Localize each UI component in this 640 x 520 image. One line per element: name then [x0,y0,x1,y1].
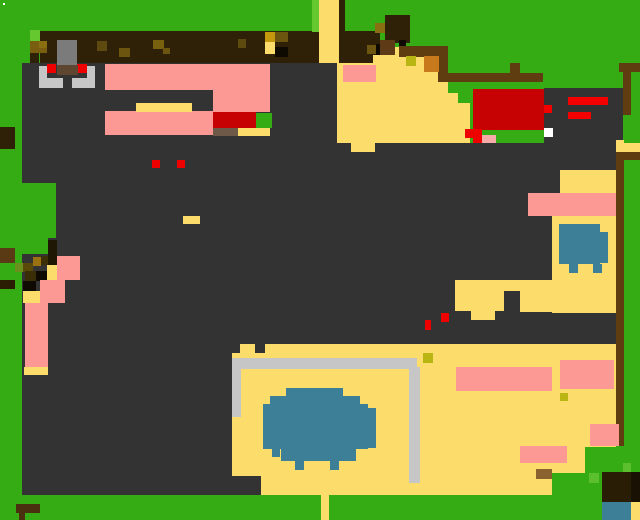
sand-room-top [560,170,616,193]
statue-rail-right [87,66,95,88]
path-spot [97,41,107,51]
statue-rail-left [39,66,47,88]
red-roof [473,89,544,130]
red-item [177,160,185,168]
pond-small-bump [600,232,608,263]
rug-room3 [590,424,619,446]
statue-eye-left [47,64,56,73]
path-hole [275,47,288,57]
rug-bottom [105,111,213,135]
rug-small [57,256,80,280]
pond-big-foot2 [330,461,339,470]
roof-stripe2 [568,112,591,119]
grass-bottom [0,495,640,520]
path-spot [275,32,288,42]
grass-tuft2 [623,463,631,472]
pond-corner [602,502,631,520]
table-small [183,216,200,224]
item-citron2 [423,353,433,363]
bush2-gold [33,257,41,266]
fence-right-bar [616,152,640,160]
tree-trunk [48,240,57,265]
rug-room1 [456,367,552,391]
tree-spot [367,45,376,54]
statue-base [57,65,78,75]
red-flower2 [473,129,482,143]
sand-corner-br [631,502,640,520]
table [136,103,192,112]
statue [57,40,77,66]
path-spot [238,39,246,48]
path-sand-spot [265,42,275,54]
pond-big-r1 [286,388,343,396]
log-dark [0,280,15,289]
rug-sand-yard [343,65,376,82]
tree-dark-br [631,472,640,502]
rug-column [25,303,48,367]
bush2-black2 [23,281,36,291]
sand-strip [24,367,48,375]
sand-path-tab [471,311,495,320]
item-citron [406,56,416,66]
crate-brown [213,128,238,136]
bush-gold-light [39,41,47,48]
sand-path-chunk2 [520,288,552,312]
tree-trunk-top [339,0,345,31]
statue-eye-right [77,64,87,73]
path-spot [119,48,130,57]
rug-small2 [40,280,65,303]
bush-highlight [30,30,40,41]
roof-white [544,128,553,137]
pond-big-low [281,449,356,461]
bush-shadow [30,53,39,63]
red-item3 [441,313,449,322]
pink-flower [482,135,496,143]
fence-right-strip [616,160,624,446]
wall-notch [0,127,15,149]
pond-big-dot [272,449,280,457]
rug-top [105,64,270,90]
rug-room4 [520,446,567,463]
sand-step2 [448,93,458,143]
item-crate-orange [424,56,439,72]
pond-small [559,224,600,264]
sand-path-exit [321,495,329,520]
grass-inlet [0,183,56,238]
tree-canopy [385,15,410,43]
sand-path-chunk [455,280,504,311]
red-machine [213,112,256,128]
fence-bar [438,73,543,82]
sand-path-vertical [319,0,339,64]
sand-tab [351,143,375,152]
pond-big-right [368,408,376,448]
rug-right [213,88,270,112]
pond-small-foot2 [593,264,602,273]
sand-patch [47,265,57,280]
pond-small-foot [569,264,578,273]
bush2-dark [41,256,48,265]
tree-branch [380,40,395,55]
roof-stripe1 [568,97,608,105]
sand-corner [616,143,640,152]
pond-big-main [263,404,368,449]
log [0,248,15,263]
sand-edge [373,55,402,64]
crate-sand [238,128,270,136]
bench [16,504,40,513]
sand-step1 [438,82,448,143]
bush2-olive-dark [25,271,36,281]
statue-rail-right-foot [72,78,87,88]
tree-gold [375,23,385,33]
red-item [152,160,160,168]
rug-wide [528,193,616,216]
pen-rail-left [232,358,241,417]
pen-rail-right [409,367,420,483]
item-crate [536,469,552,479]
roof-tab [544,105,552,113]
statue-rail-left-foot [47,78,63,88]
path-spot [163,48,170,54]
rug-room2 [560,360,614,389]
green-crate [256,113,272,128]
pond-big-r2 [270,396,360,404]
grass-highlight-stripe [312,0,319,32]
speck [3,3,5,5]
fence-leg [438,56,448,74]
bench-leg [19,513,25,520]
fence-post [510,63,520,73]
pen-rail-top [232,358,417,369]
item-citron3 [560,393,568,401]
path-chest [265,32,275,42]
bush2-leaf [15,263,23,272]
pond-big-foot1 [295,461,304,470]
sand-patch2 [23,291,40,303]
game-map[interactable] [0,0,640,520]
fence-corner-side [623,63,631,115]
grass-tuft1 [589,473,599,483]
red-item2 [425,320,431,330]
tree-canopy-br [602,472,631,502]
